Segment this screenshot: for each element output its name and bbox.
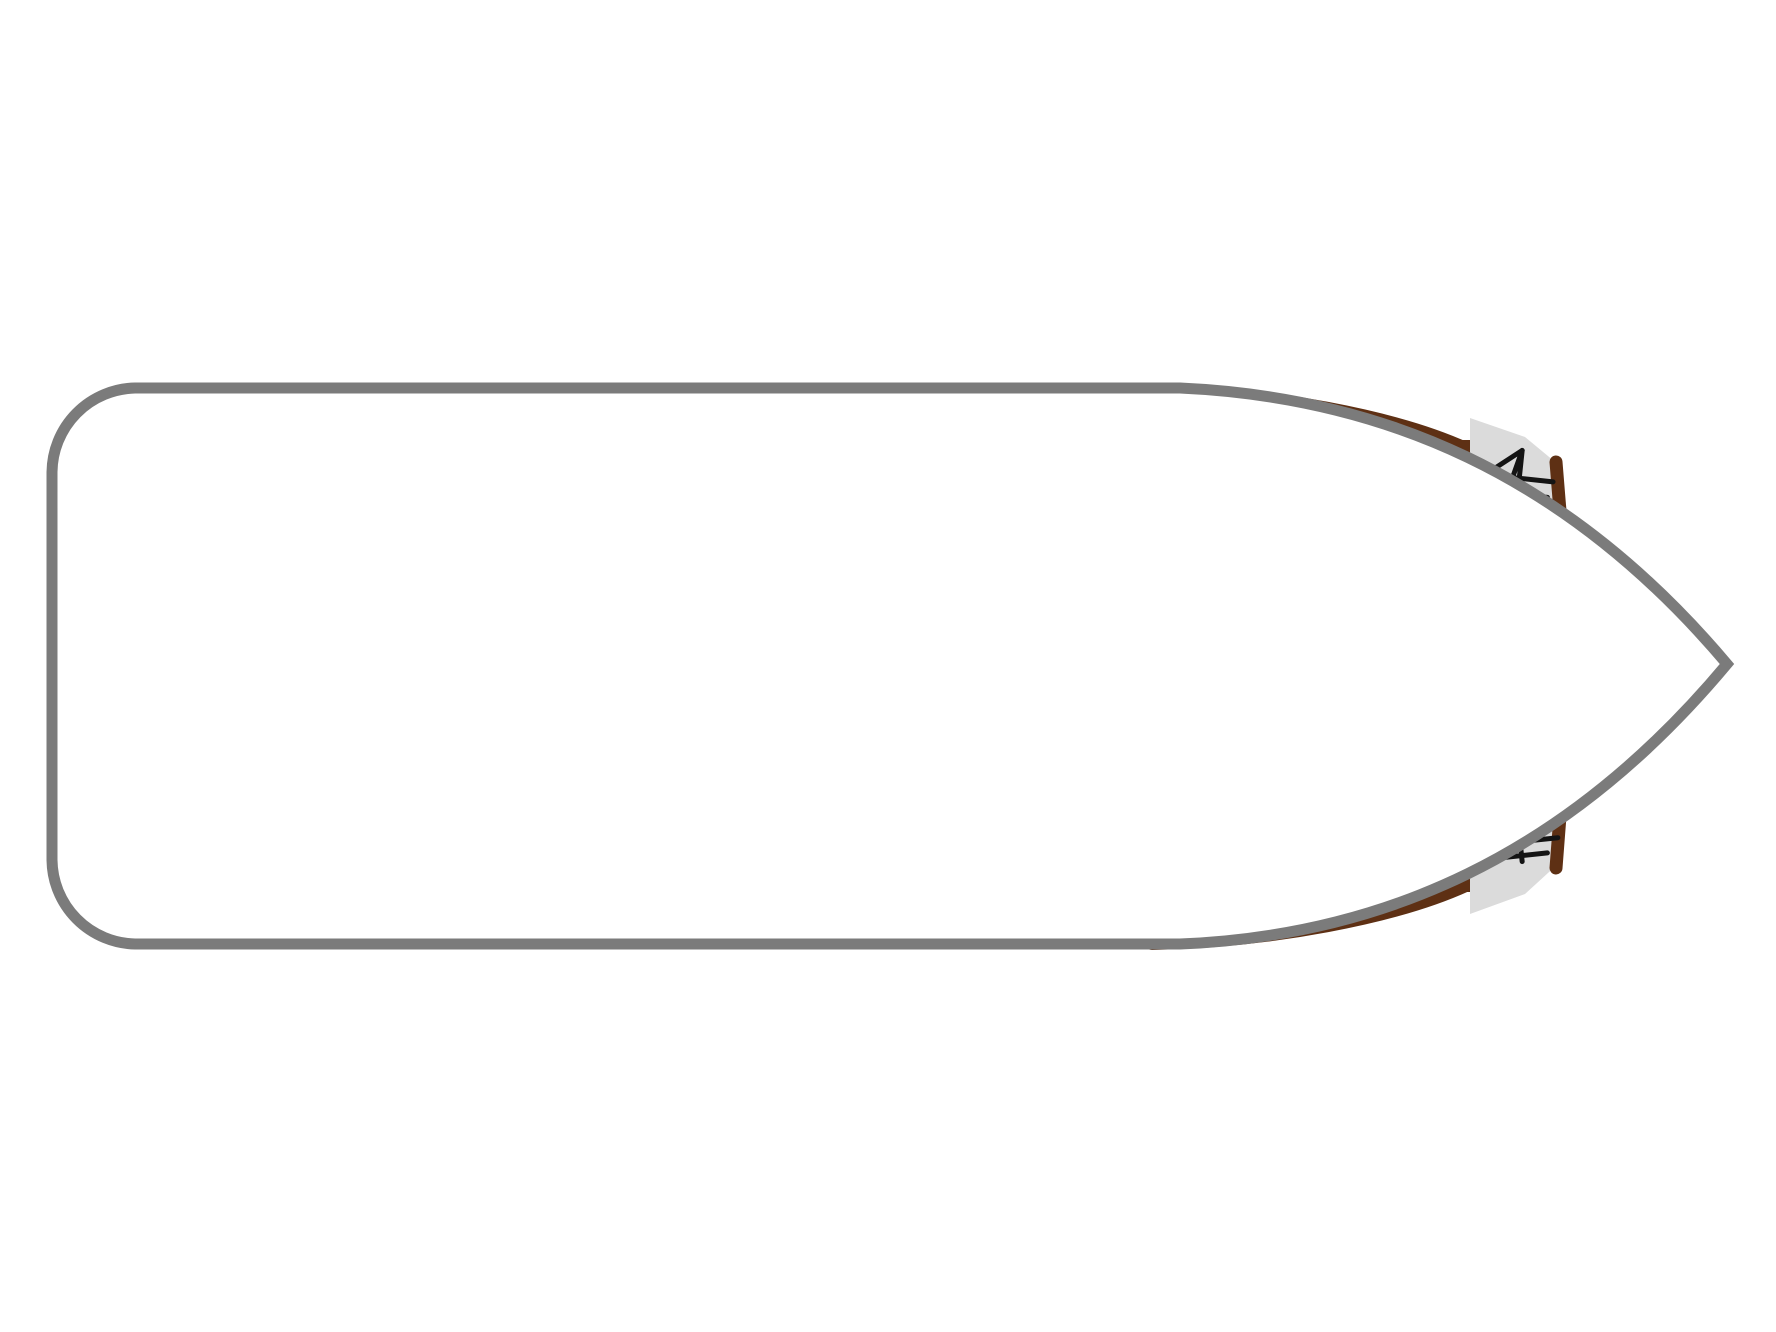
hull-outline (52, 388, 1727, 944)
boat-plan-svg (0, 0, 1776, 1332)
floor-plan (0, 0, 1776, 1332)
